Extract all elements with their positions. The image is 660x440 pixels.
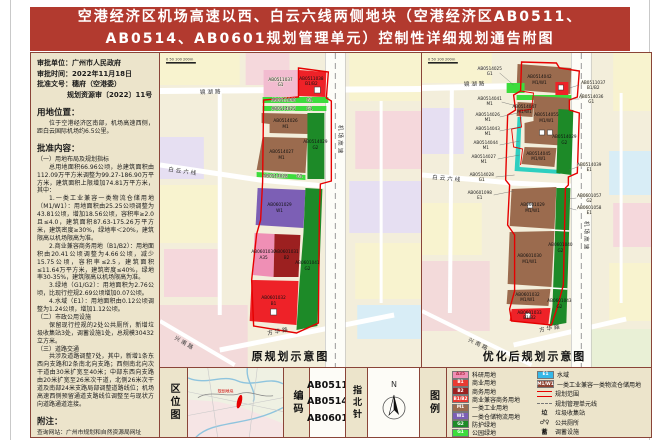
scale-bar: 0 50 100 200m: [166, 57, 196, 63]
svg-text:G2: G2: [586, 198, 592, 203]
trash-station-icon: 垃: [537, 408, 552, 417]
svg-text:G2: G2: [557, 248, 563, 253]
svg-text:G2: G2: [561, 140, 567, 145]
scale-bar: 0 50 100 200m: [428, 57, 458, 63]
approval-doc-no: 批准文号：穗府（空港委）: [37, 79, 154, 90]
svg-text:M1: M1: [278, 155, 285, 160]
storage-facility-icon: 蓄: [537, 427, 552, 436]
road-label-jichang: 机场高速: [582, 221, 590, 251]
legend-row-storage: 蓄 调蓄设施: [537, 428, 579, 435]
swatch-w1: W1: [452, 412, 469, 420]
svg-text:AB0601040: AB0601040: [548, 242, 573, 247]
svg-text:G1: G1: [306, 106, 312, 111]
title-line-2: AB0514、AB0601规划管理单元）控制性详细规划通告附图: [30, 29, 630, 51]
compass: N: [367, 367, 419, 437]
legend-row-e1: E1 水域: [537, 371, 569, 378]
svg-text:M1: M1: [485, 117, 492, 122]
svg-text:G1: G1: [479, 177, 485, 182]
page-edge-line-left: [10, 0, 11, 440]
approval-date: 审批时间：2022年11月18日: [37, 69, 154, 80]
swatch-b2: B2: [452, 387, 469, 395]
svg-text:B1/B2: B1/B2: [305, 81, 318, 86]
legend-row-b1b2: B1/B2 商业兼容商务用地: [452, 396, 520, 403]
svg-text:AB0514025: AB0514025: [271, 106, 296, 111]
svg-text:M1/W1: M1/W1: [532, 80, 547, 85]
svg-text:M1/W1: M1/W1: [525, 208, 540, 213]
code-label: 编码: [283, 367, 309, 437]
legend-row-g2: G2 防护绿地: [452, 421, 496, 428]
legend-row-w1: W1 一类仓储物流用地: [452, 413, 520, 420]
svg-text:AB0514042: AB0514042: [527, 74, 552, 79]
left-info-panel: 审批单位：广州市人民政府 审批时间：2022年11月18日 批准文号：穗府（空港…: [31, 53, 159, 437]
content-frame: 审批单位：广州市人民政府 审批时间：2022年11月18日 批准文号：穗府（空港…: [30, 52, 652, 438]
svg-text:M1/W1: M1/W1: [522, 259, 537, 264]
svg-text:M1: M1: [481, 159, 488, 164]
swatch-g1: G1: [452, 429, 469, 437]
legend-row-b1: B1 商业用地: [452, 379, 496, 386]
north-arrow-icon: N: [376, 375, 412, 431]
svg-text:AB0601029: AB0601029: [520, 202, 545, 207]
svg-text:G1: G1: [487, 71, 493, 76]
para: 共涉及道路调整7处，其中，新增1条东西向支路和2条南北向支路；西侧南北向次干道由…: [37, 353, 154, 408]
para: 总用地面积66.96公顷，总建筑面积由112.09万平方米调整为99.27-18…: [37, 164, 154, 196]
svg-text:AB0601030: AB0601030: [517, 253, 542, 258]
swatch-m1w1: M1/W1: [537, 380, 554, 388]
svg-text:B2: B2: [284, 255, 290, 260]
svg-text:AB0514055: AB0514055: [534, 112, 559, 117]
legend-row-toilet: ♂♀ 公共厕所: [537, 419, 579, 426]
swatch-a35: A35: [452, 371, 469, 379]
svg-text:G2: G2: [312, 145, 318, 150]
planning-notice-page: 空港经济区机场高速以西、白云六线两侧地块（空港经济区AB0511、 AB0514…: [0, 0, 660, 440]
legend: A35 科研用地 B1 商业用地 B2 商务用地 B1/B2 商业兼容商务用地 …: [446, 367, 651, 437]
optimized-plan-svg: AB0514025G1 AB0514042M1/W1 AB0511037B1/B…: [422, 53, 651, 367]
trash-icon: [539, 130, 544, 135]
map-caption-original: 原规划示意图: [252, 349, 330, 363]
para: 4.水域（E1）：用地面积由0.12公顷调整为1.24公顷，增加1.12公顷。: [37, 298, 154, 314]
map-original-plan: AB0511037G1 AB0511038B1/B2 AB0511040G1 A…: [159, 53, 421, 367]
svg-text:AB0601041: AB0601041: [295, 260, 320, 265]
svg-text:AB0514029: AB0514029: [552, 134, 577, 139]
swatch-b1b2: B1/B2: [452, 395, 469, 403]
swatch-g2: G2: [452, 420, 469, 428]
site-marker-label: 规划地块: [218, 389, 234, 394]
code-ab0601: AB0601: [307, 411, 348, 428]
svg-text:M1: M1: [483, 145, 490, 150]
note-heading: 附注：: [37, 415, 154, 427]
svg-text:B1/B2: B1/B2: [523, 315, 536, 320]
para: 3.绿地（G1/G2）：用地面积为2.76公顷，比现行控规2.69公顷增加0.0…: [37, 282, 154, 298]
location-map-svg: 规划地块: [188, 368, 283, 437]
legend-row-unit-line: 规划管理单元线: [537, 400, 597, 407]
svg-text:AB0601043: AB0601043: [547, 298, 572, 303]
svg-text:B1/B2: B1/B2: [587, 85, 600, 90]
code-ab0514: AB0514: [307, 394, 348, 411]
legend-row-m1: M1 一类工业用地: [452, 404, 508, 411]
code-ab0511: AB0511: [307, 378, 348, 395]
swatch-m1: M1: [452, 404, 469, 412]
svg-text:AB0511040: AB0511040: [271, 97, 296, 102]
note-line: 查询网站：广州市规划和自然资源局网址: [37, 429, 154, 437]
svg-text:AB0514028: AB0514028: [263, 173, 288, 178]
svg-text:A35: A35: [260, 255, 269, 260]
svg-text:G1: G1: [297, 173, 303, 178]
svg-text:AB0601032: AB0601032: [261, 295, 286, 300]
svg-text:G1: G1: [306, 97, 312, 102]
page-title: 空港经济区机场高速以西、白云六线两侧地块（空港经济区AB0511、 AB0514…: [30, 7, 630, 51]
svg-text:G2: G2: [556, 304, 562, 309]
svg-text:M1: M1: [282, 124, 289, 129]
svg-text:AB0601031: AB0601031: [274, 249, 299, 254]
svg-text:M1/W1: M1/W1: [520, 297, 535, 302]
svg-text:W1: W1: [276, 208, 283, 213]
para-section-2: （二）市政公用设施: [37, 314, 154, 322]
approval-doc-no-2: 规划资源审〔2022〕11号: [67, 90, 154, 101]
toilet-icon: [271, 309, 277, 315]
svg-text:AB0514027: AB0514027: [269, 149, 294, 154]
unit-boundary-line-icon: [537, 403, 552, 404]
title-line-1: 空港经济区机场高速以西、白云六线两侧地块（空港经济区AB0511、: [30, 7, 630, 29]
svg-text:AB0514029: AB0514029: [303, 139, 328, 144]
location-map: 规划地块: [187, 367, 283, 437]
road-label-jichang: 机场高速: [336, 125, 344, 155]
location-heading: 用地位置：: [37, 106, 154, 118]
toilet-icon: [558, 85, 563, 90]
content-heading: 批准内容：: [37, 142, 154, 154]
svg-text:M1/W1: M1/W1: [517, 109, 532, 114]
location-text: 位于空港经济区南部，机场高速西侧，距白云国际机场约6.5公里。: [37, 120, 154, 136]
svg-text:M1: M1: [487, 101, 494, 106]
toilet-icon: ♂♀: [537, 419, 552, 426]
map-caption-optimized: 优化后规划示意图: [483, 349, 586, 363]
svg-text:G1: G1: [588, 99, 594, 104]
unit-codes: AB0511 AB0514 AB0601: [309, 367, 345, 437]
para-section-1: （一）用地布局及规划指标: [37, 156, 154, 164]
original-plan-svg: AB0511037G1 AB0511038B1/B2 AB0511040G1 A…: [160, 53, 421, 367]
legend-row-a35: A35 科研用地: [452, 371, 496, 378]
svg-text:0 50 100 200m: 0 50 100 200m: [428, 57, 456, 61]
legend-row-g1: G1 公园绿地: [452, 429, 496, 436]
svg-text:AB0601030: AB0601030: [251, 249, 276, 254]
legend-row-b2: B2 商务用地: [452, 388, 496, 395]
swatch-b1: B1: [452, 379, 469, 387]
para: 保留现行控规的2处公共厕所，新增垃圾收集站3处，调蓄设施1处，总规模30432立…: [37, 322, 154, 346]
approval-unit: 审批单位：广州市人民政府: [37, 58, 154, 69]
svg-text:E1: E1: [587, 210, 593, 215]
para: 1.一类工业兼容一类物流仓储用地（M1/W1）：用地面积由25.25公顷调整为4…: [37, 195, 154, 242]
svg-text:AB0601029: AB0601029: [267, 202, 292, 207]
legend-row-trash: 垃 垃圾收集站: [537, 409, 585, 416]
svg-text:G2: G2: [304, 266, 310, 271]
svg-text:G1: G1: [278, 82, 284, 87]
svg-text:M1/W1: M1/W1: [531, 156, 546, 161]
legend-row-m1w1: M1/W1 一类工业兼容一类物流仓储用地: [537, 381, 641, 388]
para: 2.商业兼容商务用地（B1/B2）：用地面积由20.41公顷调整为4.66公顷，…: [37, 243, 154, 283]
compass-label: 指北针: [345, 367, 367, 437]
location-map-label: 区位图: [159, 367, 187, 437]
legend-label: 图例: [419, 367, 446, 437]
svg-text:0 50 100 200m: 0 50 100 200m: [166, 57, 194, 61]
planning-range-line-icon: [537, 391, 552, 397]
legend-row-boundary: 规划范围: [537, 390, 579, 397]
toilet-icon: [314, 87, 320, 93]
compass-n: N: [391, 380, 397, 389]
svg-text:M1/W1: M1/W1: [539, 118, 554, 123]
svg-text:E1: E1: [477, 195, 483, 200]
swatch-e1: E1: [537, 371, 554, 379]
map-optimized-plan: AB0514025G1 AB0514042M1/W1 AB0511037B1/B…: [421, 53, 651, 367]
svg-text:M1: M1: [485, 131, 492, 136]
svg-text:E1: E1: [587, 167, 593, 172]
svg-text:B1: B1: [271, 301, 277, 306]
svg-text:AB0514026: AB0514026: [273, 118, 298, 123]
